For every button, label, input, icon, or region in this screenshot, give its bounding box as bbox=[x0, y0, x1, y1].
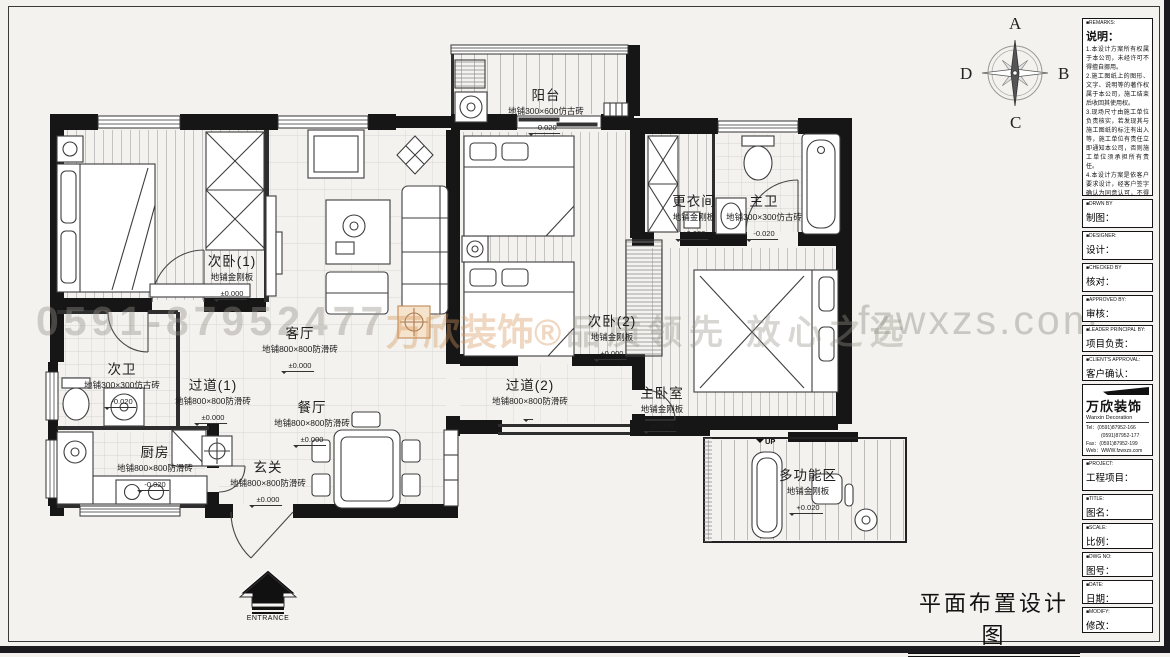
compass-star bbox=[978, 36, 1052, 110]
field-label-zh: 图号： bbox=[1086, 563, 1149, 577]
field-label-en: ■PROJECT: bbox=[1086, 462, 1149, 468]
field-label-en: ■DWG NO: bbox=[1086, 555, 1149, 561]
room-label-hallway2: 过道(2) 地铺800×800防滑砖 bbox=[492, 374, 568, 425]
remarks-title: 说明： bbox=[1086, 28, 1149, 44]
room-floor-spec: 地铺800×800防滑砖 bbox=[175, 395, 251, 407]
drawing-title: 平面布置设计图 bbox=[908, 586, 1080, 657]
room-floor-spec: 地铺800×800防滑砖 bbox=[492, 395, 568, 407]
room-name: 厨房 bbox=[117, 441, 193, 461]
field-label-zh: 客户确认： bbox=[1086, 366, 1149, 380]
field-label-en: ■CHECKED BY bbox=[1086, 266, 1149, 272]
field-label-zh: 核对： bbox=[1086, 274, 1149, 288]
panel-drawn-by: ■DRWN BY 制图： bbox=[1082, 199, 1153, 228]
compass-rose-icon: A B C D bbox=[952, 16, 1074, 134]
room-level: -0.020 bbox=[532, 123, 559, 134]
entrance-label: ENTRANCE bbox=[247, 615, 290, 622]
up-text: UP bbox=[765, 437, 775, 446]
compass-top: A bbox=[1009, 14, 1021, 34]
compass-left: D bbox=[960, 64, 972, 84]
company-web: Web：WWW.fzwxzs.com bbox=[1086, 448, 1149, 456]
room-label-entry: 玄关 地铺800×800防滑砖 ±0.000 bbox=[230, 456, 306, 507]
room-label-multi-function: 多功能区 地铺金刚板 +0.020 bbox=[779, 464, 837, 515]
panel-dwg-no: ■DWG NO: 图号： bbox=[1082, 552, 1153, 577]
company-logo: 万欣装饰 bbox=[1086, 396, 1149, 415]
room-level: -0.020 bbox=[141, 480, 168, 491]
room-level: ±0.000 bbox=[218, 289, 247, 300]
room-level: ±0.000 bbox=[648, 421, 677, 432]
remarks-item: 4.本设计方案是依客户要求设计，经客户签字确认为同意认可，不得随意更改。 bbox=[1086, 172, 1149, 197]
room-label-living: 客厅 地铺800×800防滑砖 ±0.000 bbox=[262, 322, 338, 373]
panel-remarks: ■REMARKS: 说明： 1.本设计方案所有权属于本公司，未经许可不得擅自挪用… bbox=[1082, 18, 1153, 196]
field-label-en: ■DESIGNER: bbox=[1086, 234, 1149, 240]
room-name: 客厅 bbox=[262, 322, 338, 342]
room-name: 玄关 bbox=[230, 456, 306, 476]
field-label-zh: 审核： bbox=[1086, 306, 1149, 320]
room-label-balcony: 阳台 地铺300×600仿古砖 -0.020 bbox=[508, 84, 584, 135]
field-label-en: ■LEADER PRINCIPAL BY: bbox=[1086, 328, 1149, 334]
field-label-zh: 设计： bbox=[1086, 242, 1149, 256]
room-label-bedroom1: 次卧(1) 地铺金刚板 ±0.000 bbox=[208, 250, 257, 301]
room-floor-spec: 地铺金刚板 bbox=[588, 331, 637, 343]
room-name: 过道(2) bbox=[492, 374, 568, 394]
room-level: ±0.000 bbox=[254, 495, 283, 506]
room-floor-spec: 地铺金刚板 bbox=[640, 403, 684, 415]
company-fax: Fax：(0591)87952-199 bbox=[1086, 441, 1149, 449]
field-label-en: ■MODIFY: bbox=[1086, 610, 1149, 616]
room-level: -0.020 bbox=[108, 397, 135, 408]
field-label-en: ■DRWN BY bbox=[1086, 202, 1149, 208]
shoe-cabinet-icon bbox=[444, 430, 458, 506]
up-arrow-icon bbox=[756, 439, 764, 447]
room-level bbox=[527, 418, 533, 420]
room-name: 次卫 bbox=[84, 358, 160, 378]
room-level: ±0.000 bbox=[680, 229, 709, 240]
panel-modify: ■MODIFY: 修改： bbox=[1082, 607, 1153, 633]
room-name: 阳台 bbox=[508, 84, 584, 104]
panel-company: 万欣装饰 Wanxin Decoration Tel：(0591)87952-1… bbox=[1082, 384, 1153, 456]
panel-title: ■TITLE: 图名： bbox=[1082, 494, 1153, 520]
compass-right: B bbox=[1058, 64, 1069, 84]
company-logo-banner bbox=[1103, 387, 1149, 395]
room-label-second-bath: 次卫 地铺300×300仿古砖 -0.020 bbox=[84, 358, 160, 409]
room-name: 主卧室 bbox=[640, 382, 684, 402]
compass-bottom: C bbox=[1010, 113, 1021, 133]
multi-room-wall-hatch bbox=[704, 438, 712, 542]
master-bed-icon bbox=[694, 270, 838, 392]
room-label-master-bedroom: 主卧室 地铺金刚板 ±0.000 bbox=[640, 382, 684, 433]
panel-project-leader: ■LEADER PRINCIPAL BY: 项目负责： bbox=[1082, 325, 1153, 352]
room-floor-spec: 地铺800×800防滑砖 bbox=[117, 462, 193, 474]
room-name: 更衣间 bbox=[672, 190, 716, 210]
field-label-zh: 比例： bbox=[1086, 534, 1149, 548]
room-name: 多功能区 bbox=[779, 464, 837, 484]
room-label-master-bath: 主卫 地铺300×300仿古砖 -0.020 bbox=[726, 190, 802, 241]
entrance-arrow-icon bbox=[240, 570, 296, 614]
room-floor-spec: 地铺金刚板 bbox=[208, 271, 257, 283]
room-name: 次卧(2) bbox=[588, 310, 637, 330]
field-label-zh: 工程项目： bbox=[1086, 470, 1149, 484]
company-tel2: (0591)87952-177 bbox=[1086, 433, 1149, 441]
panel-date: ■DATE: 日期： bbox=[1082, 580, 1153, 604]
remarks-label-en: ■REMARKS: bbox=[1086, 21, 1149, 27]
room-name: 餐厅 bbox=[274, 396, 350, 416]
remarks-item: 1.本设计方案所有权属于本公司，未经许可不得擅自挪用。 bbox=[1086, 46, 1149, 73]
room-level: ±0.000 bbox=[199, 413, 228, 424]
remarks-item: 2.施工图纸上的图形、文字、说明等的著作权属于本公司，施工结束后收回其使用权。 bbox=[1086, 73, 1149, 109]
room-floor-spec: 地铺800×800防滑砖 bbox=[230, 477, 306, 489]
room-floor-spec: 地铺金刚板 bbox=[672, 211, 716, 223]
panel-checked-by: ■CHECKED BY 核对： bbox=[1082, 263, 1153, 292]
room-level: +0.020 bbox=[793, 503, 822, 514]
company-tel: Tel：(0591)87952-166 bbox=[1086, 425, 1149, 433]
room-floor-spec: 地铺300×600仿古砖 bbox=[508, 105, 584, 117]
room-label-dressing: 更衣间 地铺金刚板 ±0.000 bbox=[672, 190, 716, 241]
room-floor-spec: 地铺800×800防滑砖 bbox=[262, 343, 338, 355]
field-label-en: ■SCALE: bbox=[1086, 526, 1149, 532]
field-label-en: ■CLIENT'S APPROVAL: bbox=[1086, 358, 1149, 364]
up-label: UP bbox=[756, 436, 775, 447]
panel-project: ■PROJECT: 工程项目： bbox=[1082, 459, 1153, 491]
room-name: 过道(1) bbox=[175, 374, 251, 394]
room-label-hallway1: 过道(1) 地铺800×800防滑砖 ±0.000 bbox=[175, 374, 251, 425]
room-label-dining: 餐厅 地铺800×800防滑砖 ±0.000 bbox=[274, 396, 350, 447]
panel-designer: ■DESIGNER: 设计： bbox=[1082, 231, 1153, 260]
room-level: ±0.000 bbox=[598, 349, 627, 360]
field-label-zh: 图名： bbox=[1086, 505, 1149, 519]
field-label-zh: 项目负责： bbox=[1086, 336, 1149, 350]
field-label-en: ■DATE: bbox=[1086, 583, 1149, 589]
room-floor-spec: 地铺300×300仿古砖 bbox=[726, 211, 802, 223]
panel-client-approval: ■CLIENT'S APPROVAL: 客户确认： bbox=[1082, 355, 1153, 381]
field-label-en: ■APPROVED BY: bbox=[1086, 298, 1149, 304]
room-name: 主卫 bbox=[726, 190, 802, 210]
panel-approved-by: ■APPROVED BY: 审核： bbox=[1082, 295, 1153, 322]
room-level: ±0.000 bbox=[298, 435, 327, 446]
field-label-zh: 修改： bbox=[1086, 618, 1149, 632]
room-name: 次卧(1) bbox=[208, 250, 257, 270]
room-level: ±0.000 bbox=[286, 361, 315, 372]
remarks-item: 3.现场尺寸由施工单位负责核实，若发现其与施工图纸的标注有出入等，施工单位有责任… bbox=[1086, 109, 1149, 172]
field-label-zh: 制图： bbox=[1086, 210, 1149, 224]
company-name-en: Wanxin Decoration bbox=[1086, 415, 1149, 423]
room-label-bedroom2: 次卧(2) 地铺金刚板 ±0.000 bbox=[588, 310, 637, 361]
panel-scale: ■SCALE: 比例： bbox=[1082, 523, 1153, 549]
room-label-kitchen: 厨房 地铺800×800防滑砖 -0.020 bbox=[117, 441, 193, 492]
room-floor-spec: 地铺800×800防滑砖 bbox=[274, 417, 350, 429]
room-floor-spec: 地铺300×300仿古砖 bbox=[84, 379, 160, 391]
field-label-en: ■TITLE: bbox=[1086, 497, 1149, 503]
field-label-zh: 日期： bbox=[1086, 591, 1149, 605]
room-floor-spec: 地铺金刚板 bbox=[779, 485, 837, 497]
room-level: -0.020 bbox=[750, 229, 777, 240]
